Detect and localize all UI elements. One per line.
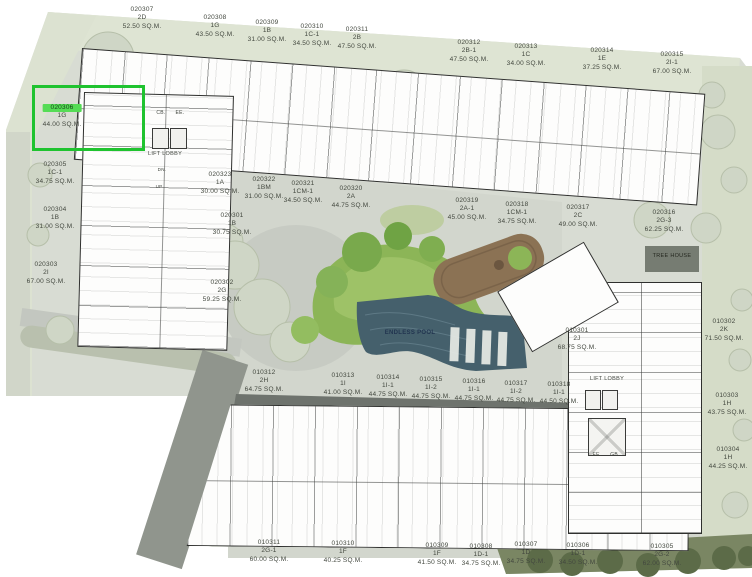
- unit-area: 45.00 SQ.M.: [448, 214, 487, 222]
- unit-type: 2J: [558, 335, 597, 343]
- unit-type: 2A-1: [448, 205, 487, 213]
- unit-id: 020321: [284, 180, 323, 188]
- unit-label-020322[interactable]: 0203221BM31.00 SQ.M.: [245, 176, 284, 201]
- unit-label-020311[interactable]: 0203112B47.50 SQ.M.: [338, 26, 377, 51]
- unit-type: 1E: [583, 55, 622, 63]
- unit-id: 010312: [245, 369, 284, 377]
- unit-area: 44.00 SQ.M.: [43, 121, 82, 129]
- unit-id: 010311: [250, 539, 289, 547]
- cb-label-top: CB.: [156, 110, 165, 116]
- unit-label-020317[interactable]: 0203172C49.00 SQ.M.: [559, 204, 598, 229]
- unit-type: 1D: [507, 549, 546, 557]
- unit-id: 010314: [369, 374, 408, 382]
- unit-label-020309[interactable]: 0203091B31.00 SQ.M.: [248, 19, 287, 44]
- unit-type: 2I-1: [653, 59, 692, 67]
- unit-label-020308[interactable]: 0203081G43.50 SQ.M.: [196, 14, 235, 39]
- unit-area: 44.75 SQ.M.: [455, 395, 494, 403]
- unit-type: 2I: [27, 269, 66, 277]
- unit-type: 2B: [338, 34, 377, 42]
- unit-type: 2D: [123, 14, 162, 22]
- elevator-shaft: [152, 128, 169, 149]
- unit-type: 1G: [196, 22, 235, 30]
- unit-area: 34.50 SQ.M.: [284, 197, 323, 205]
- unit-area: 41.50 SQ.M.: [418, 559, 457, 567]
- unit-label-010308[interactable]: 0103081D-134.75 SQ.M.: [462, 543, 501, 568]
- unit-label-020313[interactable]: 0203131C34.00 SQ.M.: [507, 43, 546, 68]
- unit-label-010312[interactable]: 0103122H64.75 SQ.M.: [245, 369, 284, 394]
- unit-id: 010317: [497, 380, 536, 388]
- unit-area: 34.75 SQ.M.: [36, 178, 75, 186]
- unit-area: 59.25 SQ.M.: [203, 296, 242, 304]
- unit-type: 2H: [245, 377, 284, 385]
- unit-type: 1H: [708, 400, 747, 408]
- unit-label-010305[interactable]: 0103052G-262.00 SQ.M.: [643, 543, 682, 568]
- unit-label-020305[interactable]: 0203051C-134.75 SQ.M.: [36, 161, 75, 186]
- unit-label-020320[interactable]: 0203202A44.75 SQ.M.: [332, 185, 371, 210]
- unit-type: 2C: [559, 212, 598, 220]
- unit-type: 1D-1: [559, 550, 598, 558]
- unit-area: 44.75 SQ.M.: [497, 397, 536, 405]
- unit-label-020312[interactable]: 0203122B-147.50 SQ.M.: [450, 39, 489, 64]
- site-plan-canvas: 0203072D52.50 SQ.M.0203081G43.50 SQ.M.02…: [0, 0, 752, 577]
- unit-type: 1F: [324, 548, 363, 556]
- unit-id: 020303: [27, 261, 66, 269]
- unit-type: 1H: [709, 454, 748, 462]
- unit-area: 43.75 SQ.M.: [708, 409, 747, 417]
- unit-id: 020308: [196, 14, 235, 22]
- unit-id: 020304: [36, 206, 75, 214]
- elevator-shaft: [585, 390, 601, 410]
- unit-type: 1I-2: [412, 384, 451, 392]
- unit-label-010317[interactable]: 0103171I-244.75 SQ.M.: [497, 380, 536, 405]
- unit-label-010306[interactable]: 0103061D-134.50 SQ.M.: [559, 542, 598, 567]
- unit-type: 1D-1: [462, 551, 501, 559]
- gb-label-bottom: GB.: [610, 452, 620, 458]
- unit-type: 1BM: [245, 184, 284, 192]
- unit-label-020315[interactable]: 0203152I-167.00 SQ.M.: [653, 51, 692, 76]
- unit-label-010310[interactable]: 0103101F40.25 SQ.M.: [324, 540, 363, 565]
- unit-area: 49.00 SQ.M.: [559, 221, 598, 229]
- unit-type: 1B: [248, 27, 287, 35]
- unit-id: 020301: [213, 212, 252, 220]
- unit-type: 2G: [203, 287, 242, 295]
- tree-house-structure: [645, 246, 699, 272]
- unit-area: 67.00 SQ.M.: [653, 68, 692, 76]
- unit-label-020306[interactable]: 0203061G44.00 SQ.M.: [43, 104, 82, 129]
- unit-label-020318[interactable]: 0203181CM-134.75 SQ.M.: [498, 201, 537, 226]
- unit-id: 010310: [324, 540, 363, 548]
- unit-area: 34.75 SQ.M.: [498, 218, 537, 226]
- unit-label-010318[interactable]: 0103181I-144.50 SQ.M.: [540, 381, 579, 406]
- unit-area: 60.00 SQ.M.: [250, 556, 289, 564]
- unit-area: 44.75 SQ.M.: [412, 393, 451, 401]
- tree-house-label: TREE HOUSE: [653, 253, 692, 259]
- unit-type: 1I: [324, 380, 363, 388]
- unit-id: 020314: [583, 47, 622, 55]
- unit-label-020323[interactable]: 0203231A30.00 SQ.M.: [201, 171, 240, 196]
- unit-area: 30.75 SQ.M.: [213, 229, 252, 237]
- unit-label-020316[interactable]: 0203162G-362.25 SQ.M.: [645, 209, 684, 234]
- unit-area: 30.00 SQ.M.: [201, 188, 240, 196]
- unit-area: 71.50 SQ.M.: [705, 335, 744, 343]
- elevator-shaft: [602, 390, 618, 410]
- unit-id: 020319: [448, 197, 487, 205]
- unit-area: 62.00 SQ.M.: [643, 560, 682, 568]
- unit-label-010302[interactable]: 0103022K71.50 SQ.M.: [705, 318, 744, 343]
- lift-lobby-label-west: LIFT LOBBY: [148, 151, 182, 157]
- unit-id: 010308: [462, 543, 501, 551]
- ee-label-bottom: EE.: [593, 452, 602, 458]
- unit-area: 34.50 SQ.M.: [559, 559, 598, 567]
- unit-label-010313[interactable]: 0103131I41.00 SQ.M.: [324, 372, 363, 397]
- unit-label-020319[interactable]: 0203192A-145.00 SQ.M.: [448, 197, 487, 222]
- unit-type: 1C-1: [293, 31, 332, 39]
- unit-id: 020318: [498, 201, 537, 209]
- unit-area: 31.00 SQ.M.: [245, 193, 284, 201]
- unit-type: 2K: [705, 326, 744, 334]
- unit-area: 44.50 SQ.M.: [540, 398, 579, 406]
- unit-area: 34.00 SQ.M.: [507, 60, 546, 68]
- unit-area: 44.75 SQ.M.: [369, 391, 408, 399]
- unit-area: 40.25 SQ.M.: [324, 557, 363, 565]
- unit-id: 010305: [643, 543, 682, 551]
- unit-type: 1I-1: [369, 382, 408, 390]
- unit-id: 010304: [709, 446, 748, 454]
- unit-id: 020307: [123, 6, 162, 14]
- elevator-shaft: [170, 128, 187, 149]
- unit-label-010311[interactable]: 0103112G-160.00 SQ.M.: [250, 539, 289, 564]
- unit-id: 020310: [293, 23, 332, 31]
- unit-id: 020322: [245, 176, 284, 184]
- unit-type: 1B: [36, 214, 75, 222]
- unit-type: 1CM-1: [284, 188, 323, 196]
- unit-area: 34.75 SQ.M.: [507, 558, 546, 566]
- unit-label-010316[interactable]: 0103161I-144.75 SQ.M.: [455, 378, 494, 403]
- unit-type: 1CM-1: [498, 209, 537, 217]
- unit-label-010301[interactable]: 0103012J68.75 SQ.M.: [558, 327, 597, 352]
- unit-id: 010318: [540, 381, 579, 389]
- unit-area: 31.00 SQ.M.: [36, 223, 75, 231]
- unit-area: 68.75 SQ.M.: [558, 344, 597, 352]
- unit-area: 43.50 SQ.M.: [196, 31, 235, 39]
- unit-type: 2G-3: [645, 217, 684, 225]
- unit-type: 2A: [332, 193, 371, 201]
- unit-id: 010313: [324, 372, 363, 380]
- unit-label-020310[interactable]: 0203101C-134.50 SQ.M.: [293, 23, 332, 48]
- ee-label-top: EE.: [176, 110, 185, 116]
- unit-label-010303[interactable]: 0103031H43.75 SQ.M.: [708, 392, 747, 417]
- unit-id: 020315: [653, 51, 692, 59]
- unit-id: 010303: [708, 392, 747, 400]
- unit-area: 52.50 SQ.M.: [123, 23, 162, 31]
- unit-label-010304[interactable]: 0103041H44.25 SQ.M.: [709, 446, 748, 471]
- unit-area: 64.75 SQ.M.: [245, 386, 284, 394]
- unit-type: 1F: [418, 550, 457, 558]
- unit-id: 010301: [558, 327, 597, 335]
- unit-type: 2B-1: [450, 47, 489, 55]
- unit-id: 010306: [559, 542, 598, 550]
- stairwell: [588, 418, 626, 456]
- unit-id: 020302: [203, 279, 242, 287]
- unit-id: 010316: [455, 378, 494, 386]
- unit-label-010315[interactable]: 0103151I-244.75 SQ.M.: [412, 376, 451, 401]
- unit-label-020314[interactable]: 0203141E37.25 SQ.M.: [583, 47, 622, 72]
- up-label: UP: [156, 184, 163, 189]
- unit-label-010309[interactable]: 0103091F41.50 SQ.M.: [418, 542, 457, 567]
- unit-id: 020323: [201, 171, 240, 179]
- unit-id: 010302: [705, 318, 744, 326]
- unit-type: 1C-1: [36, 169, 75, 177]
- unit-type: 1I-1: [540, 389, 579, 397]
- unit-id: 020316: [645, 209, 684, 217]
- unit-type: 1G: [43, 112, 82, 120]
- unit-type: 2G-1: [250, 547, 289, 555]
- unit-id: 020305: [36, 161, 75, 169]
- unit-area: 34.50 SQ.M.: [293, 40, 332, 48]
- unit-label-020307[interactable]: 0203072D52.50 SQ.M.: [123, 6, 162, 31]
- unit-area: 44.25 SQ.M.: [709, 463, 748, 471]
- unit-id: 020320: [332, 185, 371, 193]
- unit-area: 62.25 SQ.M.: [645, 226, 684, 234]
- lift-lobby-label-east: LIFT LOBBY: [590, 376, 624, 382]
- unit-id: 020309: [248, 19, 287, 27]
- unit-label-020304[interactable]: 0203041B31.00 SQ.M.: [36, 206, 75, 231]
- unit-type: 1B: [213, 220, 252, 228]
- unit-label-010314[interactable]: 0103141I-144.75 SQ.M.: [369, 374, 408, 399]
- unit-id: 020306: [43, 104, 82, 112]
- unit-area: 37.25 SQ.M.: [583, 64, 622, 72]
- unit-type: 1I-1: [455, 386, 494, 394]
- unit-area: 31.00 SQ.M.: [248, 36, 287, 44]
- unit-label-010307[interactable]: 0103071D34.75 SQ.M.: [507, 541, 546, 566]
- unit-type: 2G-2: [643, 551, 682, 559]
- unit-area: 47.50 SQ.M.: [450, 56, 489, 64]
- unit-area: 47.50 SQ.M.: [338, 43, 377, 51]
- unit-area: 44.75 SQ.M.: [332, 202, 371, 210]
- unit-id: 020312: [450, 39, 489, 47]
- unit-id: 010315: [412, 376, 451, 384]
- unit-area: 41.00 SQ.M.: [324, 389, 363, 397]
- unit-area: 34.75 SQ.M.: [462, 560, 501, 568]
- unit-type: 1A: [201, 179, 240, 187]
- unit-id: 010309: [418, 542, 457, 550]
- dn-label: DN.: [158, 167, 167, 172]
- unit-id: 020317: [559, 204, 598, 212]
- unit-area: 67.00 SQ.M.: [27, 278, 66, 286]
- unit-label-020302[interactable]: 0203022G59.25 SQ.M.: [203, 279, 242, 304]
- unit-id: 020311: [338, 26, 377, 34]
- unit-type: 1I-2: [497, 388, 536, 396]
- unit-label-020321[interactable]: 0203211CM-134.50 SQ.M.: [284, 180, 323, 205]
- unit-label-020301[interactable]: 0203011B30.75 SQ.M.: [213, 212, 252, 237]
- unit-type: 1C: [507, 51, 546, 59]
- unit-id: 020313: [507, 43, 546, 51]
- unit-label-020303[interactable]: 0203032I67.00 SQ.M.: [27, 261, 66, 286]
- unit-id: 010307: [507, 541, 546, 549]
- endless-pool-label: ENDLESS POOL: [385, 330, 436, 336]
